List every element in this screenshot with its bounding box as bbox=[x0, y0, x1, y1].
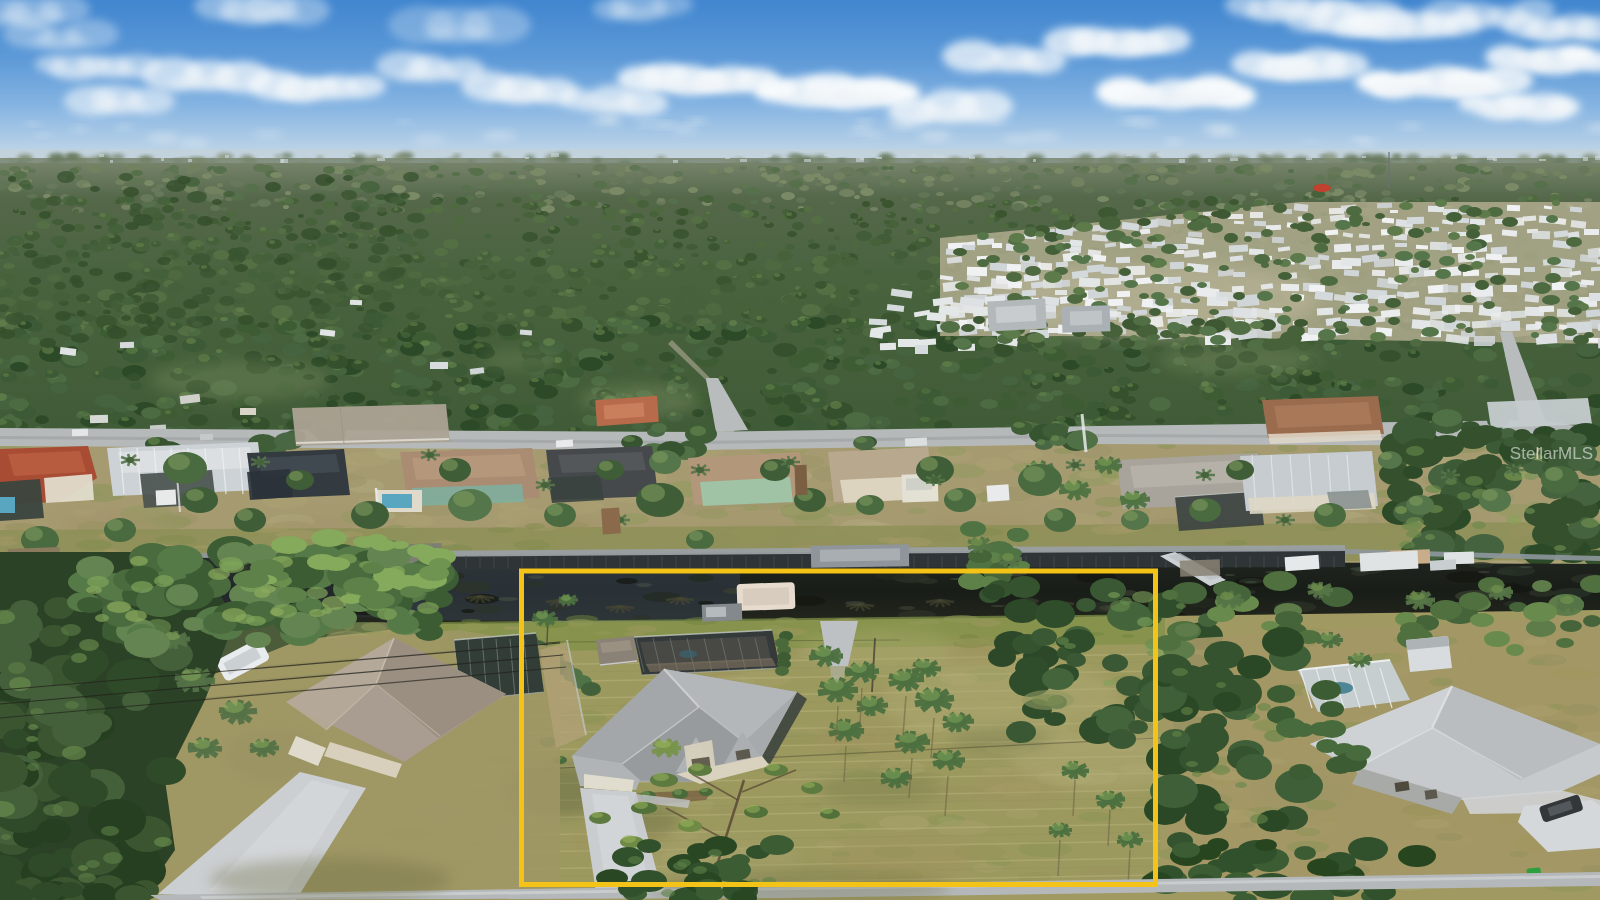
svg-text:StellarMLS: StellarMLS bbox=[1510, 444, 1593, 463]
